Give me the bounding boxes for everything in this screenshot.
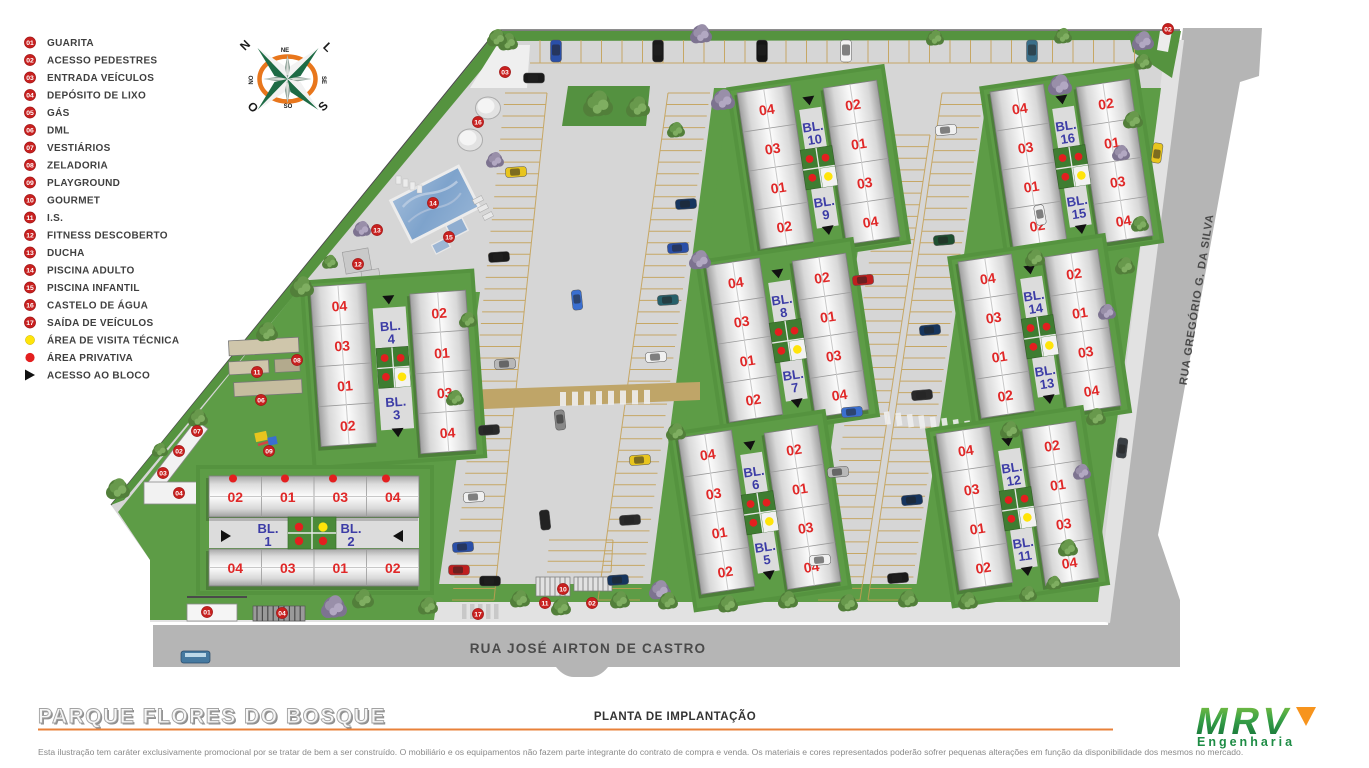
svg-text:ÁREA DE VISITA TÉCNICA: ÁREA DE VISITA TÉCNICA — [47, 334, 179, 347]
svg-text:GÁS: GÁS — [47, 106, 70, 119]
svg-text:Esta ilustração tem caráter ex: Esta ilustração tem caráter exclusivamen… — [38, 747, 1243, 757]
svg-text:NO: NO — [249, 75, 255, 84]
svg-text:08: 08 — [293, 357, 301, 364]
svg-text:02: 02 — [588, 600, 596, 607]
svg-text:04: 04 — [385, 489, 401, 505]
svg-text:03: 03 — [1077, 343, 1095, 361]
svg-text:PISCINA ADULTO: PISCINA ADULTO — [47, 266, 135, 277]
svg-text:03: 03 — [1055, 515, 1073, 533]
svg-text:09: 09 — [26, 180, 34, 187]
svg-text:03: 03 — [797, 519, 815, 537]
svg-text:SO: SO — [284, 104, 293, 110]
svg-text:04: 04 — [227, 560, 243, 576]
svg-text:SAÍDA DE VEÍCULOS: SAÍDA DE VEÍCULOS — [47, 316, 153, 329]
svg-text:CASTELO DE ÁGUA: CASTELO DE ÁGUA — [47, 299, 148, 312]
svg-text:05: 05 — [26, 110, 34, 117]
svg-text:03: 03 — [501, 69, 509, 76]
svg-text:08: 08 — [26, 162, 34, 169]
svg-text:03: 03 — [825, 347, 843, 365]
svg-text:NE: NE — [281, 48, 289, 54]
svg-text:11: 11 — [1017, 547, 1033, 564]
svg-text:GUARITA: GUARITA — [47, 38, 94, 49]
svg-text:04: 04 — [278, 610, 286, 617]
svg-text:ACESSO PEDESTRES: ACESSO PEDESTRES — [47, 56, 157, 67]
svg-text:07: 07 — [26, 145, 34, 152]
svg-text:01: 01 — [1071, 304, 1089, 322]
svg-text:02: 02 — [385, 560, 401, 576]
svg-text:02: 02 — [785, 441, 803, 459]
svg-text:02: 02 — [1164, 26, 1172, 33]
svg-text:3: 3 — [392, 407, 400, 422]
svg-text:12: 12 — [26, 232, 34, 239]
svg-text:04: 04 — [1083, 382, 1101, 400]
svg-text:01: 01 — [791, 480, 809, 498]
svg-text:RUA JOSÉ AIRTON DE CASTRO: RUA JOSÉ AIRTON DE CASTRO — [470, 641, 707, 656]
svg-text:01: 01 — [332, 560, 348, 576]
svg-text:07: 07 — [193, 428, 201, 435]
svg-text:13: 13 — [26, 250, 34, 257]
svg-text:03: 03 — [1109, 173, 1127, 191]
svg-text:DML: DML — [47, 126, 70, 137]
svg-text:02: 02 — [974, 559, 992, 577]
svg-text:15: 15 — [445, 234, 453, 241]
svg-text:PLAYGROUND: PLAYGROUND — [47, 178, 120, 189]
svg-text:PISCINA INFANTIL: PISCINA INFANTIL — [47, 283, 140, 294]
svg-text:02: 02 — [1065, 265, 1083, 283]
svg-text:FITNESS DESCOBERTO: FITNESS DESCOBERTO — [47, 231, 168, 242]
svg-text:11: 11 — [541, 600, 548, 607]
svg-text:DUCHA: DUCHA — [47, 248, 85, 259]
svg-text:ACESSO AO BLOCO: ACESSO AO BLOCO — [47, 371, 150, 382]
svg-text:02: 02 — [26, 57, 34, 64]
svg-text:04: 04 — [1061, 554, 1079, 572]
svg-text:02: 02 — [844, 96, 862, 114]
svg-text:03: 03 — [334, 337, 351, 354]
svg-text:04: 04 — [331, 297, 348, 314]
svg-text:04: 04 — [175, 490, 183, 497]
svg-text:04: 04 — [758, 100, 776, 118]
svg-text:04: 04 — [727, 273, 745, 291]
svg-text:11: 11 — [253, 369, 260, 376]
svg-text:02: 02 — [775, 218, 793, 236]
svg-text:2: 2 — [347, 534, 354, 549]
svg-text:ÁREA PRIVATIVA: ÁREA PRIVATIVA — [47, 351, 133, 364]
svg-text:VESTIÁRIOS: VESTIÁRIOS — [47, 141, 111, 154]
svg-text:03: 03 — [856, 174, 874, 192]
svg-text:04: 04 — [831, 386, 849, 404]
svg-text:10: 10 — [806, 131, 823, 148]
svg-text:02: 02 — [175, 448, 183, 455]
svg-text:16: 16 — [474, 119, 482, 126]
svg-text:03: 03 — [963, 481, 981, 499]
svg-text:01: 01 — [1049, 476, 1067, 494]
svg-text:04: 04 — [699, 445, 717, 463]
svg-text:01: 01 — [991, 348, 1009, 366]
svg-text:01: 01 — [711, 524, 729, 542]
svg-text:01: 01 — [739, 352, 757, 370]
svg-text:03: 03 — [1017, 139, 1035, 157]
svg-text:02: 02 — [716, 563, 734, 581]
svg-text:09: 09 — [265, 448, 273, 455]
svg-text:02: 02 — [744, 391, 762, 409]
svg-text:GOURMET: GOURMET — [47, 196, 100, 207]
svg-text:14: 14 — [429, 200, 437, 207]
svg-text:10: 10 — [559, 586, 567, 593]
svg-text:13: 13 — [1039, 375, 1056, 392]
svg-text:04: 04 — [1115, 212, 1133, 230]
svg-text:16: 16 — [26, 302, 34, 309]
svg-text:ENTRADA VEÍCULOS: ENTRADA VEÍCULOS — [47, 71, 154, 84]
svg-text:15: 15 — [26, 285, 34, 292]
svg-text:04: 04 — [1011, 99, 1029, 117]
svg-text:04: 04 — [439, 424, 456, 441]
svg-text:02: 02 — [996, 387, 1014, 405]
svg-text:ZELADORIA: ZELADORIA — [47, 161, 108, 172]
svg-text:03: 03 — [159, 470, 167, 477]
svg-text:1: 1 — [264, 534, 271, 549]
svg-text:01: 01 — [850, 135, 868, 153]
svg-text:02: 02 — [227, 489, 243, 505]
svg-text:DEPÓSITO DE LIXO: DEPÓSITO DE LIXO — [47, 89, 146, 102]
svg-text:I.S.: I.S. — [47, 213, 63, 224]
svg-text:01: 01 — [1023, 178, 1041, 196]
svg-text:02: 02 — [431, 305, 448, 322]
svg-text:12: 12 — [1005, 472, 1022, 489]
svg-text:03: 03 — [764, 140, 782, 158]
svg-text:10: 10 — [26, 197, 34, 204]
svg-text:01: 01 — [26, 40, 34, 47]
svg-text:11: 11 — [26, 215, 33, 222]
svg-text:01: 01 — [770, 179, 788, 197]
svg-text:17: 17 — [26, 320, 34, 327]
svg-text:03: 03 — [705, 485, 723, 503]
svg-text:04: 04 — [26, 92, 34, 99]
svg-text:01: 01 — [337, 377, 354, 394]
svg-text:PLANTA DE IMPLANTAÇÃO: PLANTA DE IMPLANTAÇÃO — [594, 710, 756, 723]
svg-text:02: 02 — [1043, 437, 1061, 455]
svg-text:01: 01 — [203, 609, 211, 616]
svg-text:01: 01 — [969, 520, 987, 538]
svg-text:PARQUE FLORES DO BOSQUE: PARQUE FLORES DO BOSQUE — [38, 705, 386, 728]
svg-text:13: 13 — [373, 227, 381, 234]
svg-text:SE: SE — [320, 76, 326, 84]
svg-text:15: 15 — [1071, 205, 1088, 222]
svg-text:03: 03 — [733, 313, 751, 331]
svg-text:02: 02 — [339, 417, 356, 434]
svg-text:02: 02 — [813, 269, 831, 287]
svg-text:03: 03 — [332, 489, 348, 505]
svg-text:06: 06 — [26, 127, 34, 134]
svg-text:03: 03 — [280, 560, 296, 576]
svg-text:17: 17 — [474, 611, 482, 618]
svg-text:01: 01 — [434, 344, 451, 361]
svg-text:01: 01 — [280, 489, 296, 505]
svg-text:12: 12 — [354, 261, 362, 268]
svg-text:03: 03 — [985, 309, 1003, 327]
svg-text:04: 04 — [957, 441, 975, 459]
svg-text:04: 04 — [979, 269, 997, 287]
svg-text:14: 14 — [26, 267, 34, 274]
svg-text:16: 16 — [1059, 130, 1076, 147]
svg-text:06: 06 — [257, 397, 265, 404]
svg-text:01: 01 — [819, 308, 837, 326]
svg-text:03: 03 — [26, 75, 34, 82]
svg-text:02: 02 — [1097, 95, 1115, 113]
svg-text:04: 04 — [862, 213, 880, 231]
svg-text:Engenharia: Engenharia — [1197, 735, 1295, 749]
